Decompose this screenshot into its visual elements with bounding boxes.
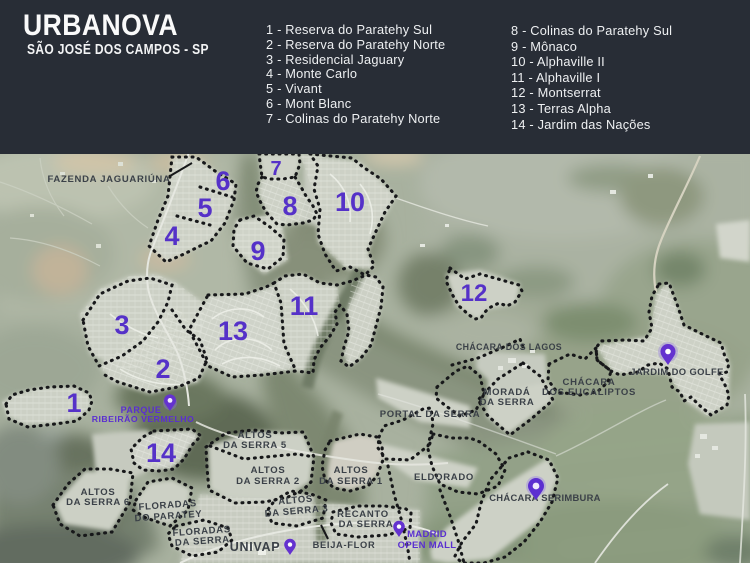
svg-text:JARDIM DO GOLFE: JARDIM DO GOLFE: [630, 366, 724, 377]
svg-text:UNIVAP: UNIVAP: [230, 540, 281, 554]
svg-text:CHÁCARA SERIMBURA: CHÁCARA SERIMBURA: [489, 492, 601, 503]
svg-text:13: 13: [218, 316, 248, 346]
svg-text:14: 14: [146, 438, 176, 468]
svg-text:PORTAL DA SERRA: PORTAL DA SERRA: [380, 409, 481, 420]
svg-text:ALTOS: ALTOS: [251, 465, 286, 476]
svg-text:ELDORADO: ELDORADO: [414, 472, 474, 483]
svg-text:ALTOS: ALTOS: [334, 465, 369, 476]
svg-text:DOS EUCALIPTOS: DOS EUCALIPTOS: [542, 387, 636, 398]
svg-text:DA SERRA: DA SERRA: [480, 397, 535, 408]
svg-text:9: 9: [250, 236, 265, 266]
svg-text:8: 8: [282, 191, 297, 221]
svg-text:5: 5: [197, 193, 212, 223]
svg-text:OPEN MALL: OPEN MALL: [398, 540, 457, 551]
svg-text:3: 3: [114, 310, 129, 340]
svg-text:4: 4: [164, 221, 179, 251]
svg-text:DA SERRA 6: DA SERRA 6: [66, 497, 130, 508]
svg-text:RIBEIRÃO VERMELHO: RIBEIRÃO VERMELHO: [92, 414, 195, 424]
svg-text:DA SERRA 2: DA SERRA 2: [236, 476, 300, 487]
svg-text:1: 1: [66, 388, 81, 418]
svg-text:CHÁCARA DOS LAGOS: CHÁCARA DOS LAGOS: [456, 342, 562, 352]
svg-text:10: 10: [335, 187, 365, 217]
svg-text:FAZENDA JAGUARIÚNA: FAZENDA JAGUARIÚNA: [47, 173, 170, 185]
svg-text:DA SERRA 5: DA SERRA 5: [223, 440, 287, 451]
svg-text:6: 6: [215, 166, 230, 196]
svg-text:DA SERRA 1: DA SERRA 1: [319, 476, 383, 487]
svg-text:DA SERRA: DA SERRA: [339, 519, 394, 530]
svg-text:MADRID: MADRID: [407, 529, 447, 540]
svg-text:11: 11: [290, 291, 319, 321]
svg-text:12: 12: [461, 280, 488, 307]
svg-text:BEIJA-FLOR: BEIJA-FLOR: [313, 540, 376, 550]
svg-text:7: 7: [270, 158, 281, 180]
svg-text:2: 2: [155, 354, 170, 384]
